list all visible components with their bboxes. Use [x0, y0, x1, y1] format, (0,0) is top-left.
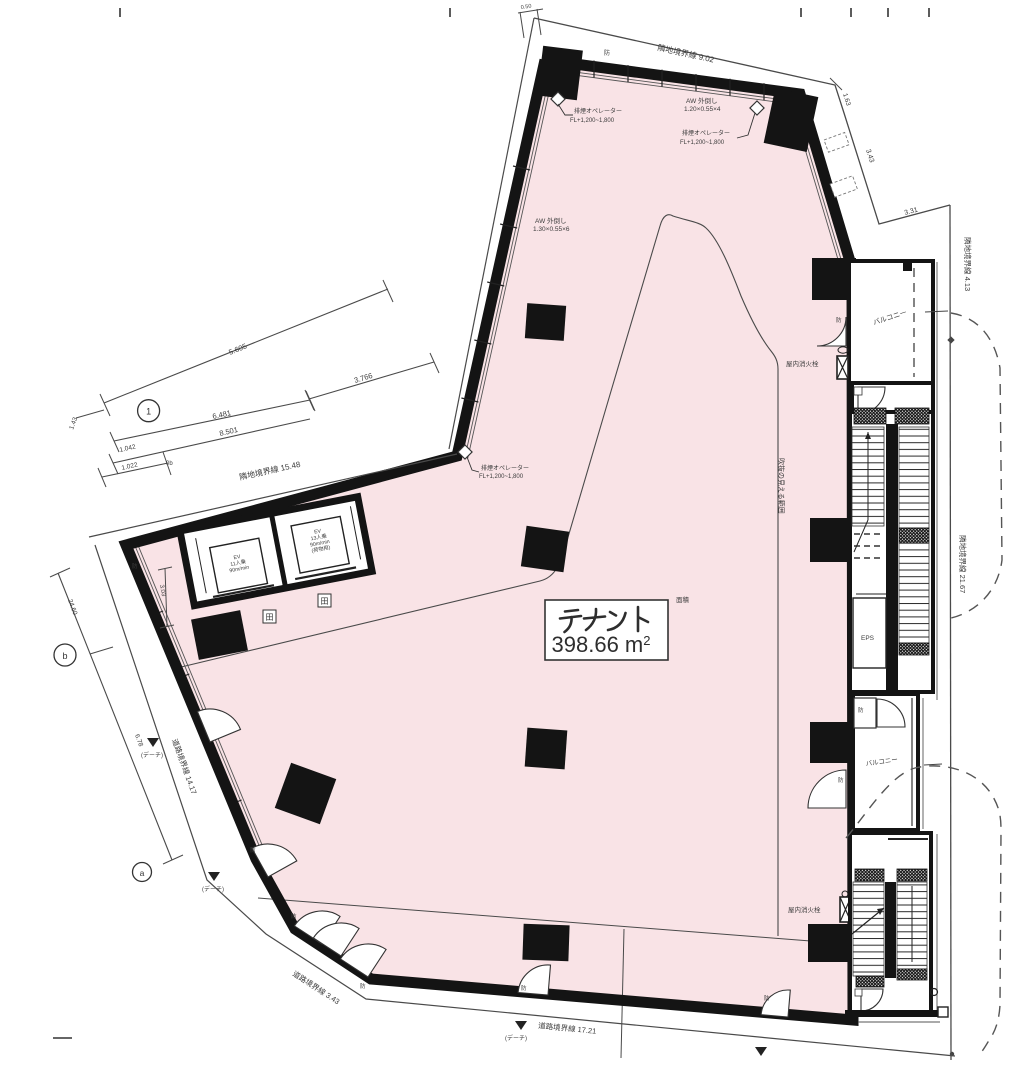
svg-text:FL+1,200~1,800: FL+1,200~1,800	[479, 474, 524, 480]
svg-text:防: 防	[360, 982, 366, 990]
svg-text:防: 防	[604, 49, 610, 57]
svg-text:1.30×0.55×6: 1.30×0.55×6	[533, 226, 570, 233]
svg-text:(デーチ): (デーチ)	[202, 885, 224, 893]
svg-text:b: b	[62, 651, 67, 661]
svg-text:(デーチ): (デーチ)	[141, 751, 163, 759]
svg-text:田: 田	[321, 597, 329, 606]
svg-text:AW 外倒し: AW 外倒し	[535, 216, 567, 225]
svg-text:排煙オペレーター: 排煙オペレーター	[682, 129, 730, 137]
svg-text:防: 防	[521, 984, 527, 992]
svg-text:防: 防	[836, 316, 842, 324]
svg-text:排煙オペレーター: 排煙オペレーター	[481, 464, 529, 472]
svg-text:FL+1,200~1,800: FL+1,200~1,800	[680, 140, 725, 146]
svg-text:EPS: EPS	[861, 635, 875, 642]
svg-text:防: 防	[132, 562, 138, 570]
svg-text:屋内消火栓: 屋内消火栓	[788, 905, 821, 914]
svg-text:a: a	[140, 868, 145, 878]
svg-text:隣地境界線 4.13: 隣地境界線 4.13	[963, 237, 973, 291]
svg-text:防: 防	[838, 776, 844, 784]
svg-text:防: 防	[764, 994, 770, 1002]
svg-text:隣地境界線 21.67: 隣地境界線 21.67	[958, 535, 968, 593]
svg-text:FL+1,200~1,800: FL+1,200~1,800	[570, 118, 615, 124]
svg-text:面積: 面積	[676, 595, 690, 604]
svg-text:屋内消火栓: 屋内消火栓	[786, 359, 819, 368]
svg-text:防: 防	[250, 846, 256, 854]
svg-text:398.66 m2: 398.66 m2	[552, 632, 651, 657]
svg-text:AW 外倒し: AW 外倒し	[686, 96, 718, 105]
svg-text:排煙オペレーター: 排煙オペレーター	[574, 107, 622, 115]
svg-text:0b: 0b	[166, 461, 173, 467]
svg-text:防: 防	[858, 706, 864, 714]
svg-text:防: 防	[291, 912, 297, 920]
svg-text:吹抜の見える範囲: 吹抜の見える範囲	[777, 458, 786, 514]
svg-text:1: 1	[146, 407, 151, 417]
svg-text:田: 田	[266, 613, 274, 622]
svg-text:1.20×0.55×4: 1.20×0.55×4	[684, 106, 721, 113]
svg-text:(デーチ): (デーチ)	[505, 1034, 527, 1042]
